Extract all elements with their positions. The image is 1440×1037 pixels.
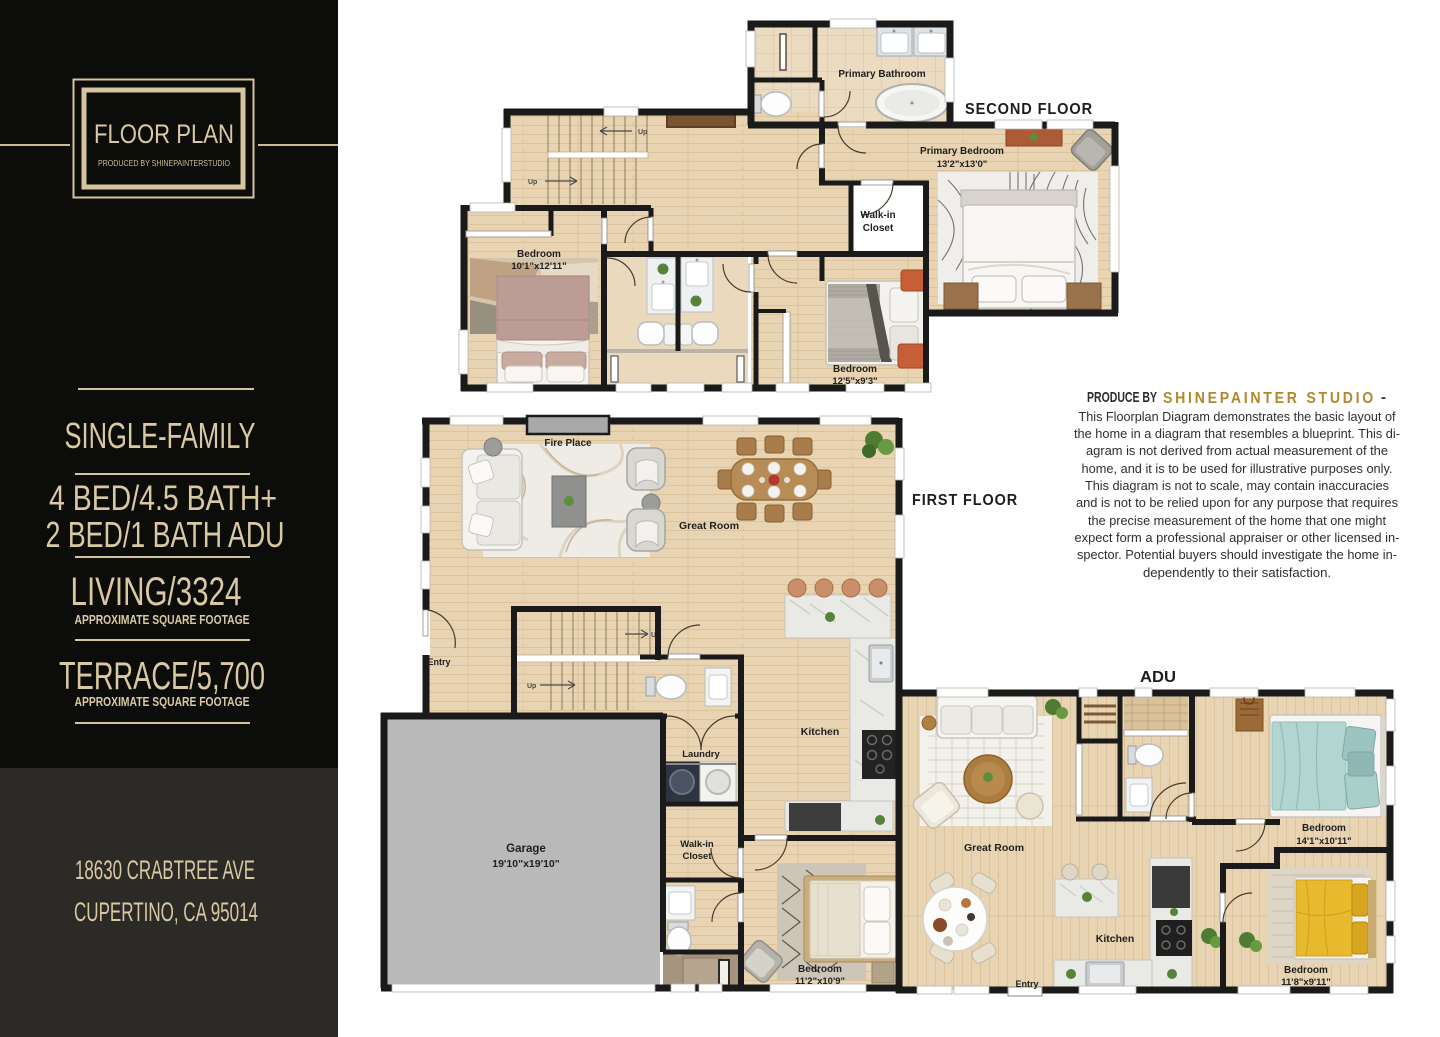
svg-text:Up: Up	[638, 129, 647, 136]
svg-text:FIRST FLOOR: FIRST FLOOR	[912, 492, 1018, 509]
svg-text:the precise measurement of the: the precise measurement of the home that…	[1088, 513, 1386, 528]
svg-text:11'8"x9'11": 11'8"x9'11"	[1281, 977, 1330, 988]
svg-text:11'2"x10'9": 11'2"x10'9"	[795, 976, 845, 987]
svg-text:13'2"x13'0": 13'2"x13'0"	[937, 159, 988, 170]
svg-text:Closet: Closet	[682, 851, 712, 862]
svg-text:SINGLE-FAMILY: SINGLE-FAMILY	[65, 415, 256, 456]
svg-text:Bedroom: Bedroom	[1302, 823, 1346, 834]
svg-text:Walk-in: Walk-in	[860, 210, 895, 221]
svg-text:Closet: Closet	[863, 223, 894, 234]
svg-text:LIVING/3324: LIVING/3324	[71, 570, 242, 614]
svg-text:19'10"x19'10": 19'10"x19'10"	[492, 858, 560, 870]
svg-text:Entry: Entry	[1015, 979, 1038, 989]
svg-text:10'1"x12'11": 10'1"x12'11"	[511, 261, 566, 272]
svg-text:SECOND FLOOR: SECOND FLOOR	[965, 101, 1093, 118]
svg-text:Walk-in: Walk-in	[680, 839, 714, 850]
svg-text:Fire Place: Fire Place	[544, 438, 592, 449]
svg-text:SHINEPAINTER STUDIO: SHINEPAINTER STUDIO	[1163, 390, 1376, 407]
svg-text:Bedroom: Bedroom	[1284, 965, 1328, 976]
svg-text:Laundry: Laundry	[682, 749, 720, 760]
svg-text:Primary Bedroom: Primary Bedroom	[920, 146, 1004, 157]
svg-text:ADU: ADU	[1140, 669, 1176, 686]
svg-text:Kitchen: Kitchen	[801, 726, 840, 738]
svg-text:This Floorplan Diagram demonst: This Floorplan Diagram demonstrates the …	[1079, 409, 1396, 424]
svg-text:Bedroom: Bedroom	[517, 249, 561, 260]
svg-text:This diagram is not to scale,: This diagram is not to scale, may contai…	[1085, 478, 1389, 493]
svg-text:spector. Potential buyers shou: spector. Potential buyers should investi…	[1077, 547, 1397, 562]
svg-text:Kitchen: Kitchen	[1096, 933, 1135, 945]
svg-text:PRODUCE BY: PRODUCE BY	[1087, 389, 1157, 406]
svg-text:18630 CRABTREE AVE: 18630 CRABTREE AVE	[75, 855, 255, 885]
svg-text:Up: Up	[528, 179, 537, 186]
svg-text:2 BED/1 BATH ADU: 2 BED/1 BATH ADU	[46, 514, 285, 555]
svg-text:Bedroom: Bedroom	[833, 364, 877, 375]
svg-text:-: -	[1381, 389, 1386, 406]
svg-text:4 BED/4.5 BATH+: 4 BED/4.5 BATH+	[49, 479, 277, 518]
svg-text:Garage: Garage	[506, 843, 546, 855]
svg-text:the home in a diagram that res: the home in a diagram that resembles a b…	[1074, 426, 1400, 441]
svg-text:Up: Up	[527, 683, 536, 690]
svg-text:Great Room: Great Room	[964, 842, 1024, 854]
svg-text:and is not to be relied upon f: and is not to be relied upon for any pur…	[1076, 495, 1398, 510]
svg-text:14'1"x10'11": 14'1"x10'11"	[1296, 836, 1351, 847]
svg-text:dependently to their satisfact: dependently to their satisfaction.	[1143, 565, 1331, 580]
svg-text:Entry: Entry	[427, 657, 450, 667]
svg-text:Primary Bathroom: Primary Bathroom	[838, 69, 925, 80]
svg-text:FLOOR PLAN: FLOOR PLAN	[94, 119, 234, 149]
svg-text:APPROXIMATE SQUARE FOOTAGE: APPROXIMATE SQUARE FOOTAGE	[75, 694, 250, 709]
svg-text:home, and it is to be used for: home, and it is to be used for illustrat…	[1082, 461, 1393, 476]
svg-text:APPROXIMATE SQUARE FOOTAGE: APPROXIMATE SQUARE FOOTAGE	[75, 612, 250, 627]
svg-text:CUPERTINO, CA 95014: CUPERTINO, CA 95014	[74, 897, 258, 927]
svg-text:12'5"x9'3": 12'5"x9'3"	[832, 376, 877, 387]
svg-text:expect form a professional app: expect form a professional appraiser or …	[1075, 530, 1400, 545]
svg-text:PRODUCED BY SHINEPAINTERSTUDIO: PRODUCED BY SHINEPAINTERSTUDIO	[98, 158, 230, 168]
svg-text:Great Room: Great Room	[679, 520, 739, 532]
svg-text:Bedroom: Bedroom	[798, 964, 842, 975]
svg-text:TERRACE/5,700: TERRACE/5,700	[59, 655, 265, 698]
svg-text:agram is not derived from actu: agram is not derived from actual measure…	[1086, 443, 1388, 458]
